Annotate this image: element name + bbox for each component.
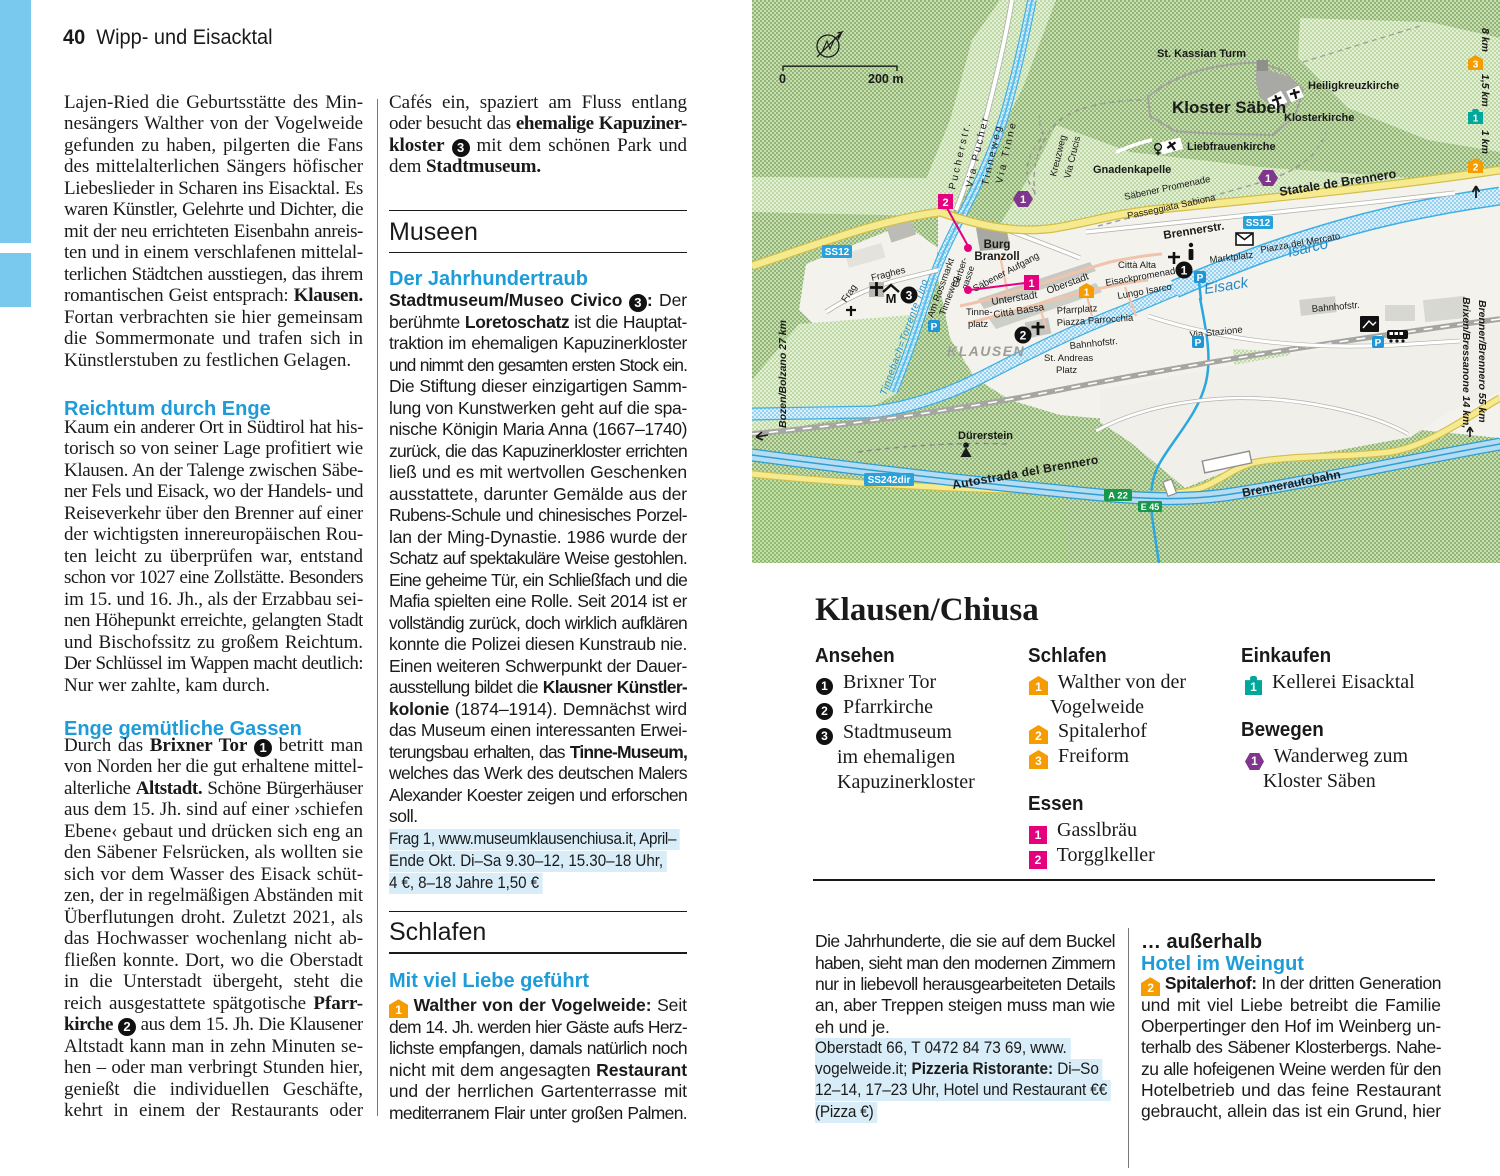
svg-text:KLAUSEN: KLAUSEN <box>947 343 1025 359</box>
svg-text:2: 2 <box>942 197 948 209</box>
svg-text:1: 1 <box>1265 173 1271 185</box>
svg-text:8 km: 8 km <box>1479 28 1491 52</box>
svg-text:St. Andreas: St. Andreas <box>1044 353 1093 364</box>
svg-text:Tinne-: Tinne- <box>966 307 993 318</box>
svg-text:1: 1 <box>1084 288 1090 299</box>
svg-text:1: 1 <box>1028 278 1034 290</box>
svg-text:Brenner/Brennero 55 km: Brenner/Brennero 55 km <box>1476 300 1488 423</box>
svg-text:Burg: Burg <box>984 239 1011 251</box>
svg-text:P: P <box>1197 273 1204 284</box>
svg-text:200 m: 200 m <box>868 72 903 86</box>
svg-text:1: 1 <box>1020 194 1026 206</box>
svg-text:Dürerstein: Dürerstein <box>958 430 1013 442</box>
svg-text:3: 3 <box>1473 60 1479 71</box>
svg-text:Gnadenkapelle: Gnadenkapelle <box>1093 164 1171 176</box>
svg-text:Bozen/Bolzano 27 km: Bozen/Bolzano 27 km <box>777 320 789 428</box>
svg-text:2: 2 <box>1020 329 1027 343</box>
svg-text:platz: platz <box>968 319 988 330</box>
svg-text:Heiligkreuzkirche: Heiligkreuzkirche <box>1308 80 1399 92</box>
svg-text:SS242dir: SS242dir <box>868 475 911 486</box>
svg-text:P: P <box>1375 338 1382 349</box>
svg-text:Liebfrauenkirche: Liebfrauenkirche <box>1187 141 1276 153</box>
svg-text:A 22: A 22 <box>1108 491 1128 502</box>
svg-text:Klosterkirche: Klosterkirche <box>1284 112 1354 124</box>
svg-text:E 45: E 45 <box>1141 502 1160 512</box>
svg-text:1: 1 <box>1473 114 1479 125</box>
svg-text:1,5 km: 1,5 km <box>1479 74 1491 107</box>
svg-text:3: 3 <box>906 289 913 303</box>
svg-text:0: 0 <box>779 72 786 86</box>
svg-text:Platz: Platz <box>1056 365 1077 376</box>
svg-text:St. Kassian Turm: St. Kassian Turm <box>1157 48 1246 60</box>
svg-text:P: P <box>1195 338 1202 349</box>
svg-text:SS12: SS12 <box>1246 218 1271 229</box>
svg-text:Kloster Säben: Kloster Säben <box>1172 98 1286 117</box>
svg-text:1 km: 1 km <box>1479 130 1491 154</box>
svg-text:M: M <box>886 291 897 306</box>
svg-text:Città Alta: Città Alta <box>1118 260 1157 271</box>
svg-text:P: P <box>931 322 938 333</box>
svg-text:Brixen/Bressanone 14 km,: Brixen/Bressanone 14 km, <box>1460 297 1472 428</box>
svg-text:SS12: SS12 <box>825 247 850 258</box>
svg-text:1: 1 <box>1181 264 1188 278</box>
svg-text:Branzoll: Branzoll <box>974 251 1019 263</box>
svg-text:2: 2 <box>1473 163 1479 174</box>
